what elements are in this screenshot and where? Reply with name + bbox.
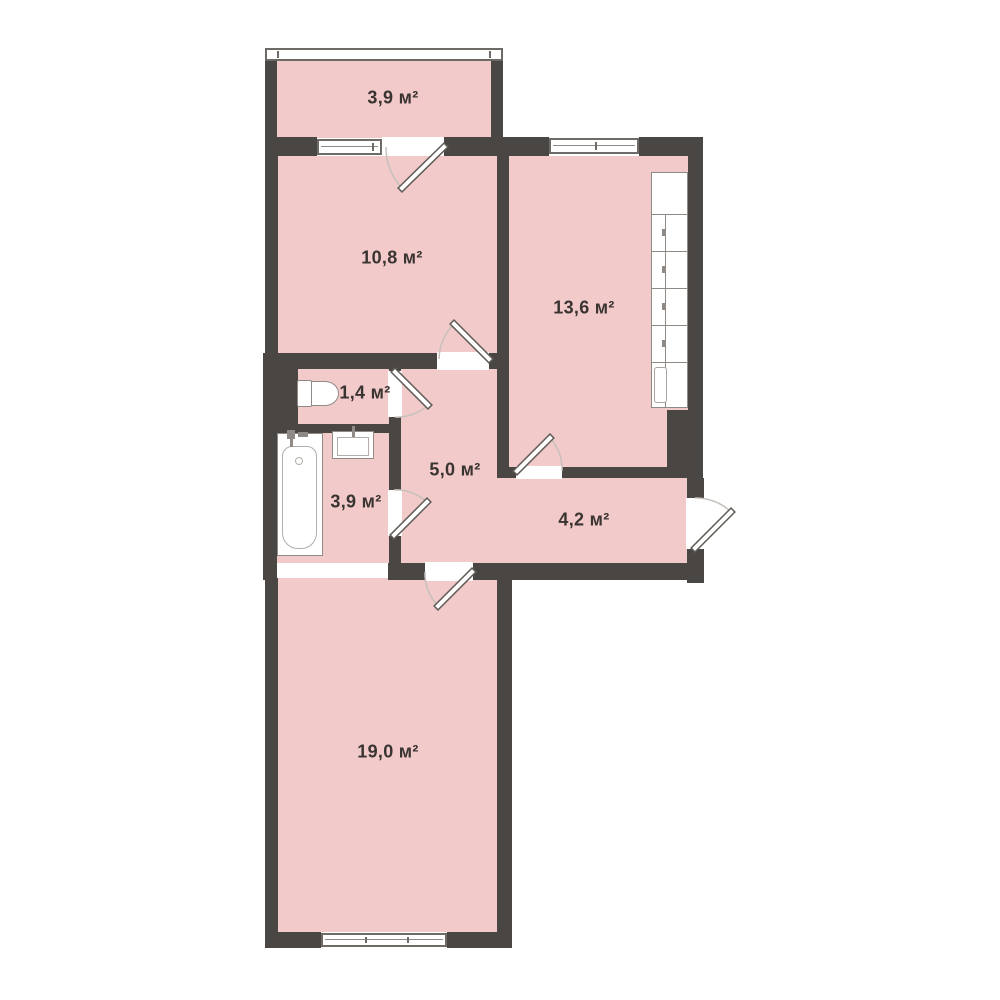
wall: [687, 478, 704, 498]
window: [321, 933, 447, 947]
wall: [667, 410, 703, 478]
window: [549, 138, 639, 154]
door-opening: [382, 137, 444, 156]
kitchen-cabinets: [651, 172, 688, 408]
room-label-hallway: 5,0 м²: [429, 460, 480, 481]
door-opening: [388, 490, 402, 536]
wall: [265, 353, 437, 369]
room-label-entrance-hall: 4,2 м²: [558, 510, 609, 531]
room-label-wc: 1,4 м²: [339, 383, 390, 404]
room-label-room-10-8: 10,8 м²: [361, 248, 422, 269]
wall: [503, 137, 549, 156]
wall: [389, 417, 401, 433]
wall: [444, 137, 503, 156]
balcony-glazing: [265, 48, 503, 61]
wall: [389, 433, 401, 490]
wall: [389, 353, 401, 371]
door-opening: [516, 466, 562, 479]
wall: [388, 563, 425, 580]
toilet-fixture: [297, 380, 312, 407]
wall: [473, 563, 703, 580]
wall: [497, 467, 516, 478]
wall: [265, 137, 317, 156]
wall: [489, 353, 497, 369]
sink-fixture: [332, 431, 374, 459]
window: [317, 139, 382, 155]
wall: [265, 932, 321, 948]
stove: [654, 367, 667, 403]
wall: [688, 156, 703, 410]
wall: [497, 156, 509, 478]
room-label-bathroom: 3,9 м²: [330, 492, 381, 513]
room-label-room-19-0: 19,0 м²: [357, 742, 418, 763]
wall: [263, 433, 277, 580]
room-label-kitchen: 13,6 м²: [553, 298, 614, 319]
room-label-balcony: 3,9 м²: [367, 88, 418, 109]
toilet-bowl: [311, 381, 339, 406]
door-opening: [425, 562, 473, 581]
bathtub-fixture: [277, 433, 323, 556]
wall: [265, 578, 278, 948]
floor-plan: 3,9 м² 10,8 м² 13,6 м² 1,4 м² 5,0 м² 3,9…: [0, 0, 1000, 1000]
wall: [497, 580, 512, 948]
wall: [639, 137, 703, 156]
door-opening: [686, 498, 705, 549]
door-opening: [437, 352, 489, 370]
wall: [265, 156, 278, 353]
wall: [447, 932, 512, 948]
